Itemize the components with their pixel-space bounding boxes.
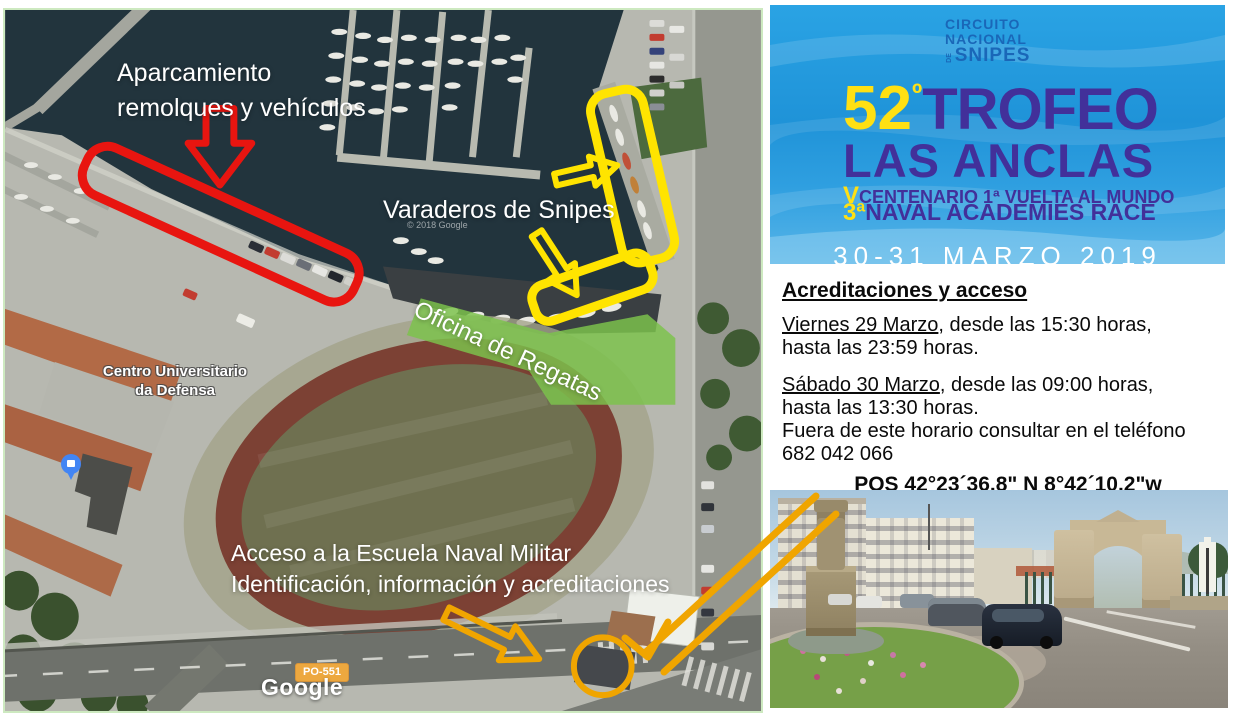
google-logo: Google: [261, 674, 343, 701]
saturday-rest: , desde las 09:00 horas,: [940, 374, 1153, 396]
street-view-photo: [770, 490, 1228, 708]
centro-label-line2: da Defensa: [95, 381, 255, 400]
car-wheel-icon: [1040, 636, 1053, 649]
map-pin-icon: [61, 454, 81, 482]
logo-line3: DESNIPES: [945, 47, 1030, 67]
stone-wall-right: [1170, 596, 1228, 610]
lawn: [630, 78, 708, 160]
edition-ordinal: º: [912, 78, 922, 109]
satellite-map: Aparcamiento remolques y vehículos Varad…: [3, 8, 763, 713]
building-back: [974, 548, 1032, 604]
friday-line1: Viernes 29 Marzo, desde las 15:30 horas,: [782, 314, 1234, 337]
logo-line1: CIRCUITO: [945, 17, 1030, 32]
logo-snipes: SNIPES: [955, 45, 1031, 66]
event-access-flyer: { "colors": { "highlight_red": "#e81510"…: [0, 0, 1237, 719]
subtitle2-prefix: 3ª: [843, 199, 865, 226]
saturday-line1: Sábado 30 Marzo, desde las 09:00 horas,: [782, 374, 1234, 397]
university-buildings: [5, 306, 182, 596]
snipe-circuit-logo: CIRCUITO NACIONAL DESNIPES: [945, 17, 1030, 67]
car-wheel-icon: [990, 636, 1003, 649]
monument-top: [814, 500, 848, 512]
poster-dates: 30-31 MARZO 2019: [770, 241, 1225, 264]
car-window: [992, 609, 1044, 622]
phone-number: 682 042 066: [782, 443, 1234, 466]
car-gray: [928, 598, 986, 626]
poster-subtitle2: 3ªNAVAL ACADEMIES RACE: [843, 199, 1156, 227]
monument-column: [817, 508, 845, 570]
poster-title-line2: LAS ANCLAS: [843, 133, 1154, 188]
logo-de: DE: [941, 53, 959, 63]
gate-pylon-left: [1054, 530, 1094, 612]
subtitle2-text: NAVAL ACADEMIES RACE: [865, 199, 1156, 225]
event-poster: CIRCUITO NACIONAL DESNIPES 52ºTROFEO LAS…: [770, 5, 1225, 264]
imagery-copyright: © 2018 Google: [407, 220, 468, 230]
access-label-line1: Acceso a la Escuela Naval Militar: [231, 538, 670, 569]
info-heading: Acreditaciones y acceso: [782, 279, 1234, 302]
saturday-line2: hasta las 13:30 horas.: [782, 397, 1234, 420]
parking-annotation-label: Aparcamiento remolques y vehículos: [117, 56, 366, 126]
access-label-line2: Identificación, información y acreditaci…: [231, 569, 670, 600]
pin-tail: [67, 472, 75, 480]
place-label-centro-universitario: Centro Universitario da Defensa: [95, 362, 255, 400]
access-annotation-label: Acceso a la Escuela Naval Militar Identi…: [231, 538, 670, 600]
friday-date: Viernes 29 Marzo: [782, 314, 938, 336]
street-lamp-icon: [1206, 548, 1209, 594]
friday-rest: , desde las 15:30 horas,: [938, 314, 1151, 336]
gate-fence-left: [1025, 572, 1055, 604]
friday-line2: hasta las 23:59 horas.: [782, 337, 1234, 360]
accreditation-info: Acreditaciones y acceso Viernes 29 Marzo…: [782, 279, 1234, 496]
parking-label-line1: Aparcamiento: [117, 56, 366, 91]
parked-car: [828, 594, 852, 605]
gate-pediment: [1096, 510, 1140, 522]
phone-notice: Fuera de este horario consultar en el te…: [782, 420, 1234, 443]
parked-car: [856, 596, 882, 608]
parking-label-line2: remolques y vehículos: [117, 91, 366, 126]
centro-label-line1: Centro Universitario: [95, 362, 255, 381]
pin-glyph: [67, 460, 75, 467]
friday-schedule: Viernes 29 Marzo, desde las 15:30 horas,…: [782, 314, 1234, 360]
saturday-date: Sábado 30 Marzo: [782, 374, 940, 396]
saturday-schedule: Sábado 30 Marzo, desde las 09:00 horas, …: [782, 374, 1234, 466]
floodlight-pole-icon: [928, 504, 930, 550]
car-dark-estate: [982, 604, 1062, 646]
